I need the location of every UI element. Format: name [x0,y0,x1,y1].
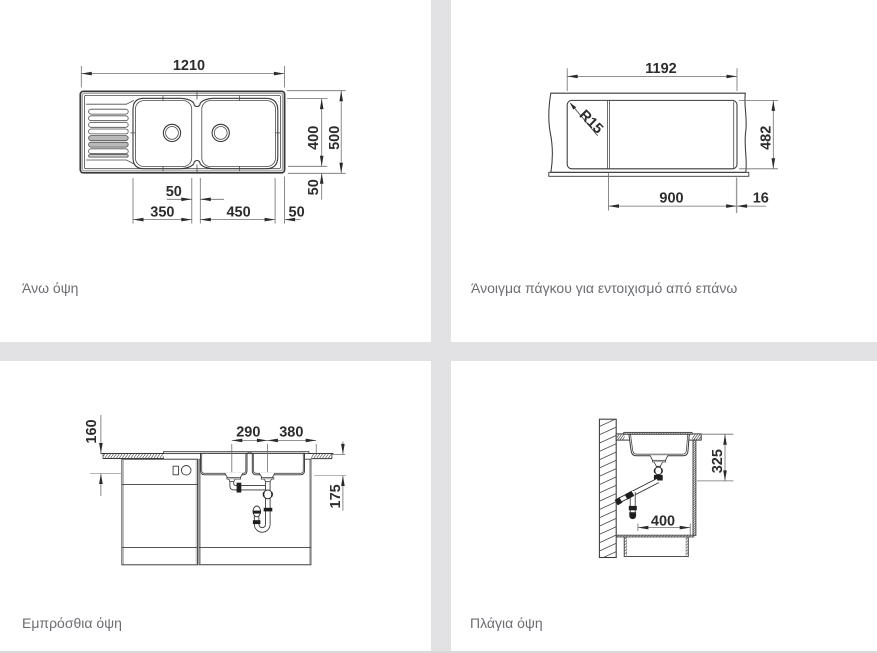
svg-text:1210: 1210 [173,58,205,74]
svg-text:325: 325 [710,449,726,473]
svg-text:500: 500 [327,126,343,150]
svg-text:160: 160 [84,419,100,443]
svg-text:380: 380 [279,425,303,441]
svg-text:290: 290 [236,425,260,441]
svg-text:50: 50 [289,204,305,220]
svg-text:175: 175 [328,484,344,508]
svg-text:450: 450 [226,204,250,220]
svg-text:16: 16 [753,191,769,207]
svg-text:400: 400 [651,514,675,530]
svg-text:482: 482 [758,126,774,150]
svg-text:50: 50 [166,184,182,200]
svg-text:900: 900 [659,191,683,207]
svg-text:50: 50 [306,179,322,195]
svg-text:1192: 1192 [645,61,676,77]
svg-text:350: 350 [150,204,174,220]
svg-text:400: 400 [306,126,322,150]
